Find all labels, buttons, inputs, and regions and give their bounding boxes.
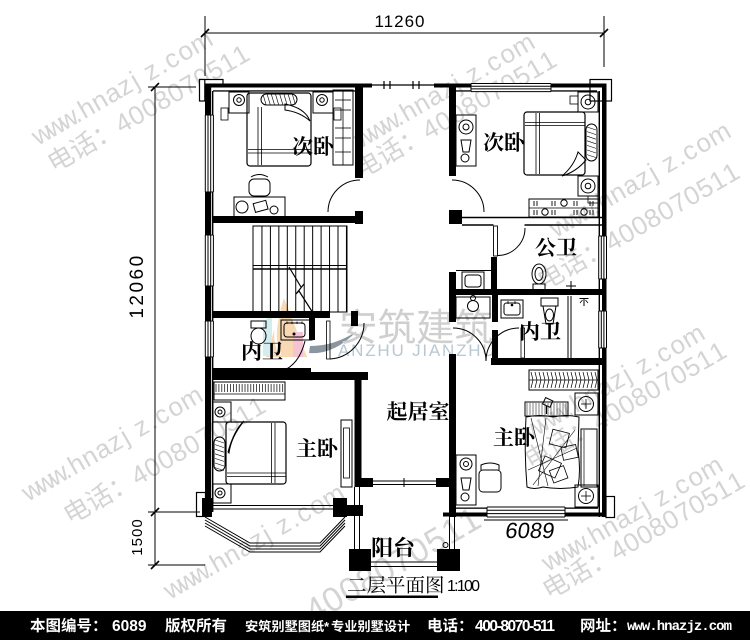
svg-text:11260: 11260	[374, 12, 425, 31]
svg-text:6089: 6089	[504, 518, 556, 543]
svg-text:1:100: 1:100	[447, 578, 480, 595]
svg-text:400-8070-511: 400-8070-511	[475, 618, 555, 635]
svg-text:www.hnazjz.com: www.hnazjz.com	[627, 619, 732, 635]
svg-text:1500: 1500	[129, 518, 146, 555]
svg-text:6089: 6089	[112, 618, 147, 635]
svg-text:*: *	[324, 619, 330, 634]
svg-text:12060: 12060	[127, 253, 148, 318]
svg-text:ANZHU JIANZHU: ANZHU JIANZHU	[338, 341, 496, 360]
